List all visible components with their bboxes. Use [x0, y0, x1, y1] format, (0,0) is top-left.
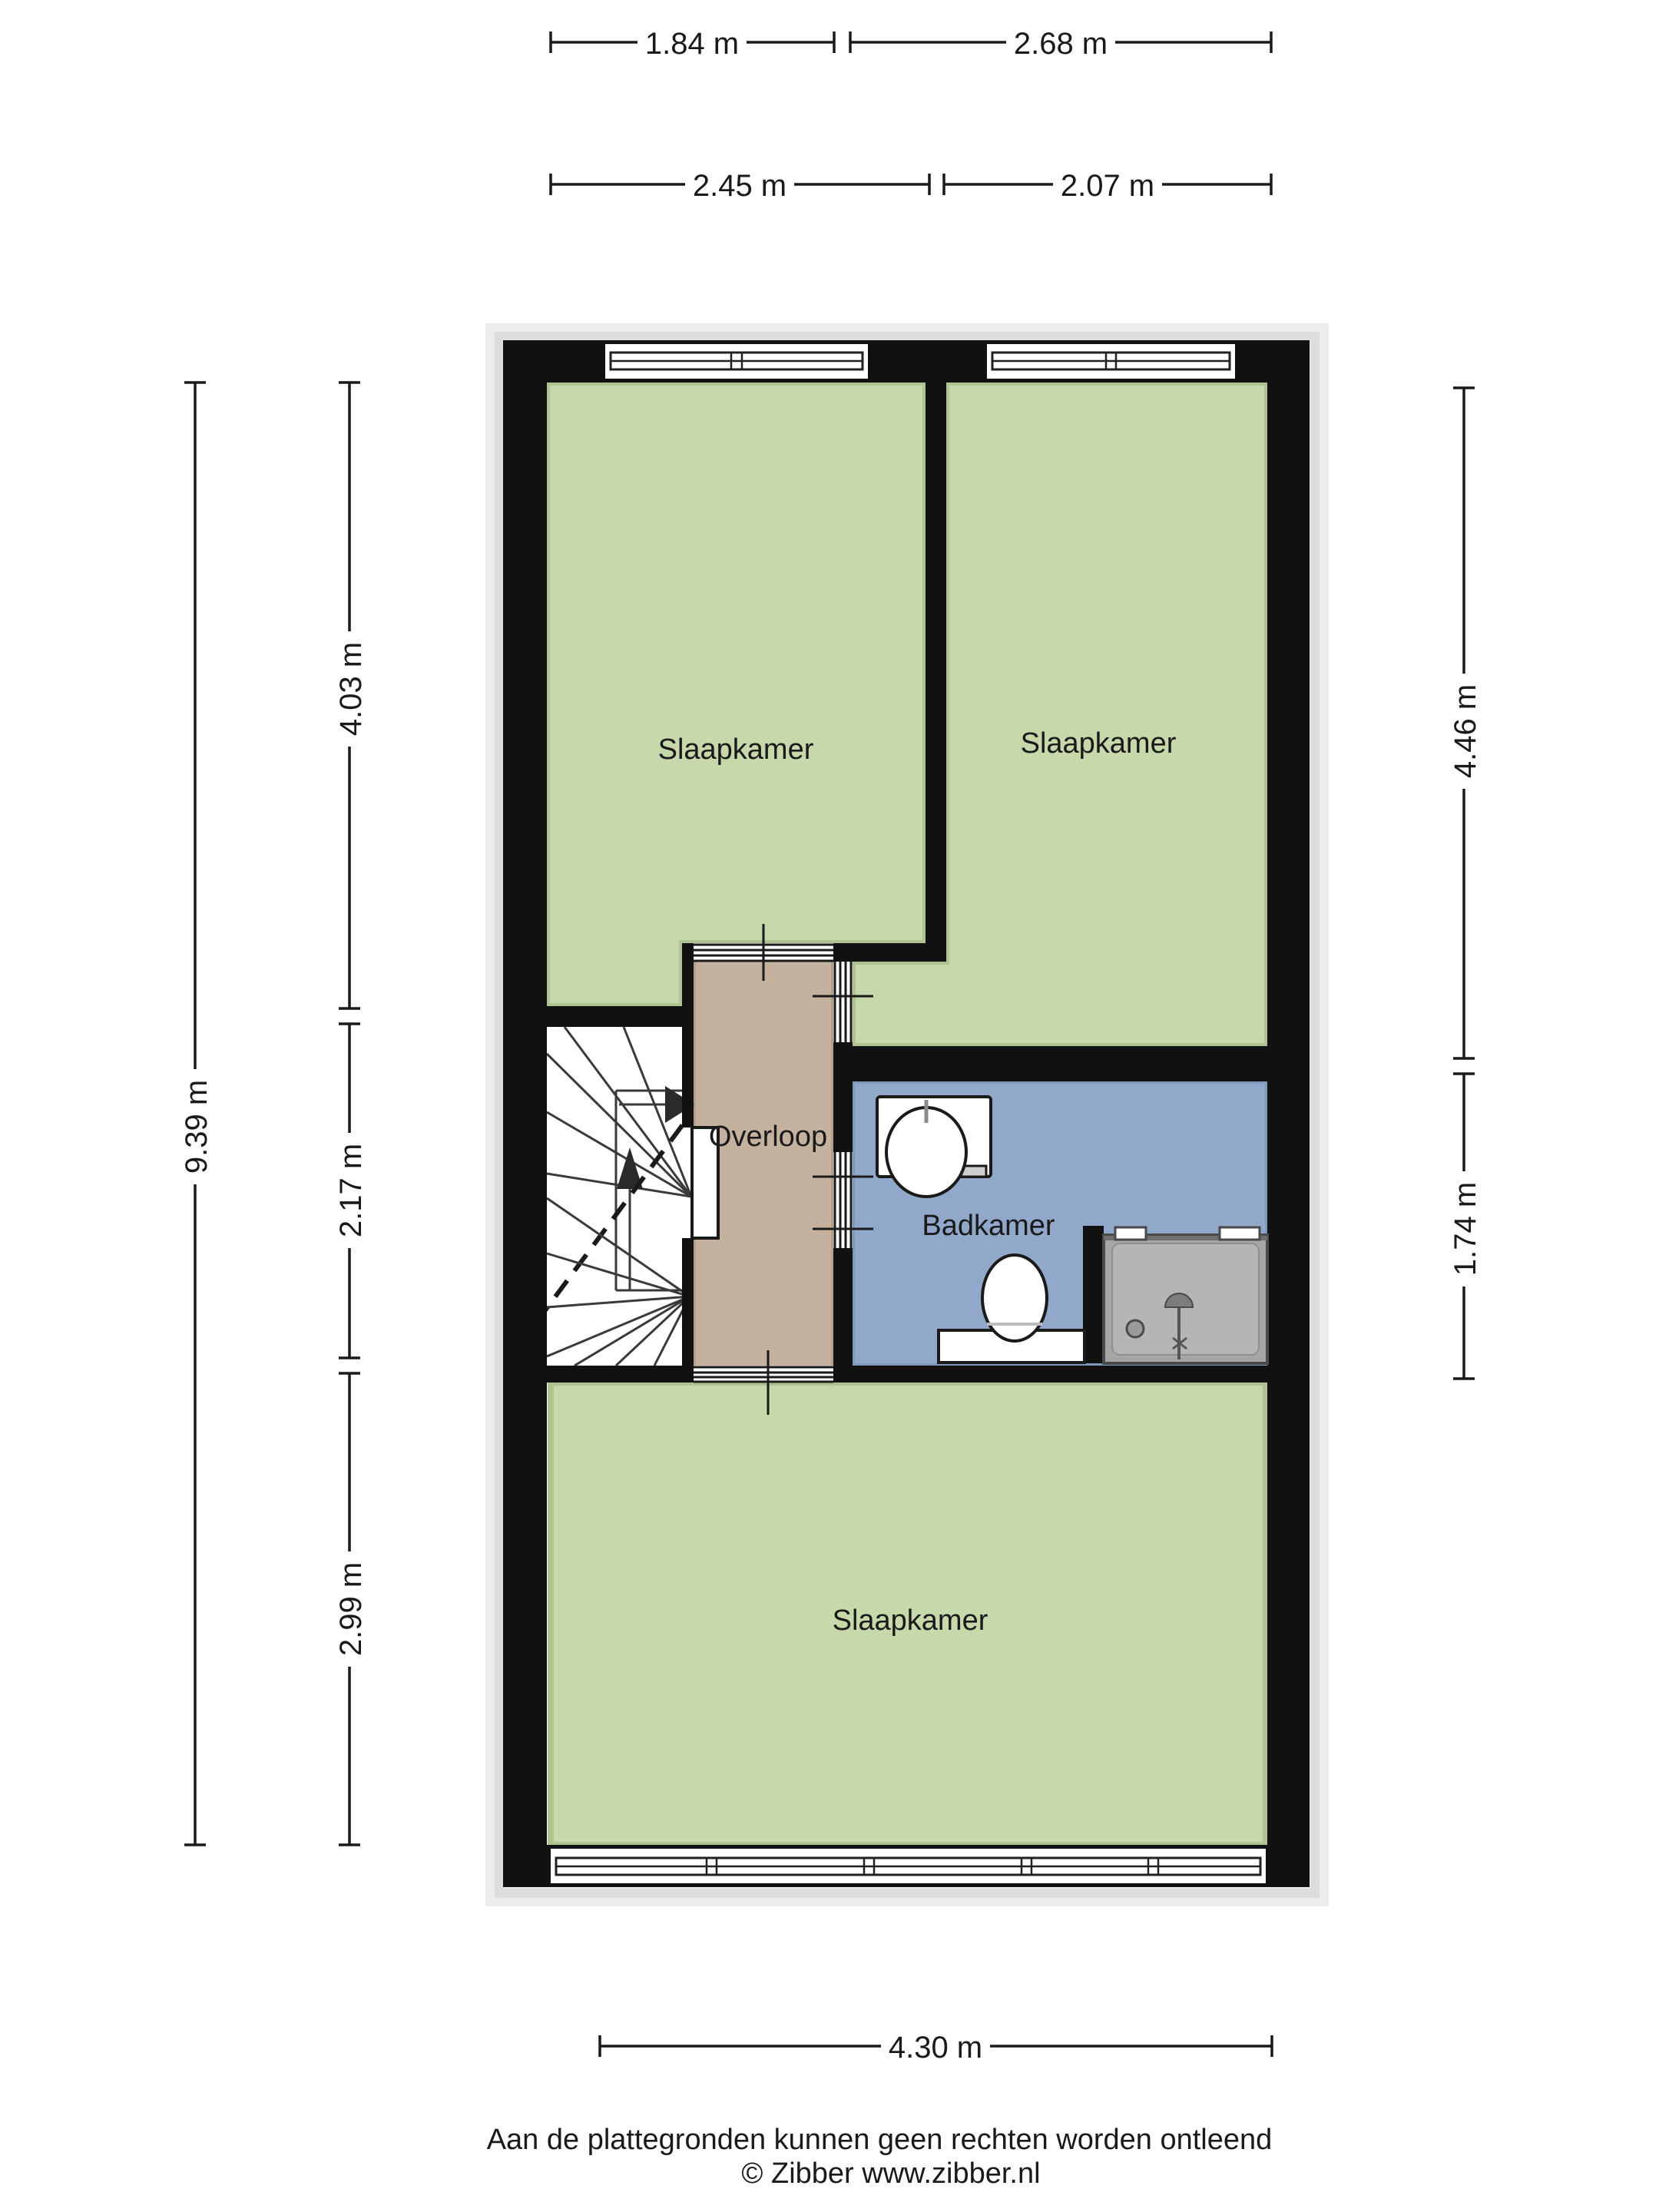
floor-plan-canvas: 1.84 m 2.68 m 2.45 m 2.07 m 9.39 m 4.	[0, 0, 1659, 2212]
room-label-landing: Overloop	[709, 1121, 827, 1153]
dim-right-seg1: 4.46 m	[1449, 684, 1482, 778]
dim-left-total: 9.39 m	[180, 1080, 214, 1174]
window-icon	[551, 1849, 1266, 1883]
dim-left-seg3: 2.99 m	[334, 1562, 368, 1656]
dim-right-seg2: 1.74 m	[1449, 1182, 1482, 1276]
footer-disclaimer: Aan de plattegronden kunnen geen rechten…	[487, 2124, 1273, 2156]
footer-copyright: © Zibber www.zibber.nl	[741, 2157, 1040, 2190]
room-label-bathroom: Badkamer	[922, 1210, 1055, 1242]
room-label-bedroom-bottom: Slaapkamer	[833, 1604, 988, 1637]
shower-icon	[1104, 1227, 1267, 1363]
window-icon	[987, 344, 1235, 379]
footer: Aan de plattegronden kunnen geen rechten…	[487, 2124, 1273, 2190]
window-icon	[605, 344, 868, 379]
floor-stairs	[547, 1027, 682, 1366]
dim-bottom: 4.30 m	[889, 2031, 982, 2065]
dim-top1-right: 2.68 m	[1014, 27, 1108, 61]
dim-left-seg1: 4.03 m	[334, 642, 368, 736]
dim-top2-right: 2.07 m	[1061, 169, 1154, 203]
dim-top2-left: 2.45 m	[693, 169, 786, 203]
dim-top1-left: 1.84 m	[645, 27, 739, 61]
floor-bedroom-top-left	[547, 382, 926, 1006]
dim-left-seg2: 2.17 m	[334, 1144, 368, 1237]
room-label-bedroom-top-right: Slaapkamer	[1021, 727, 1177, 760]
room-label-bedroom-top-left: Slaapkamer	[658, 733, 814, 766]
